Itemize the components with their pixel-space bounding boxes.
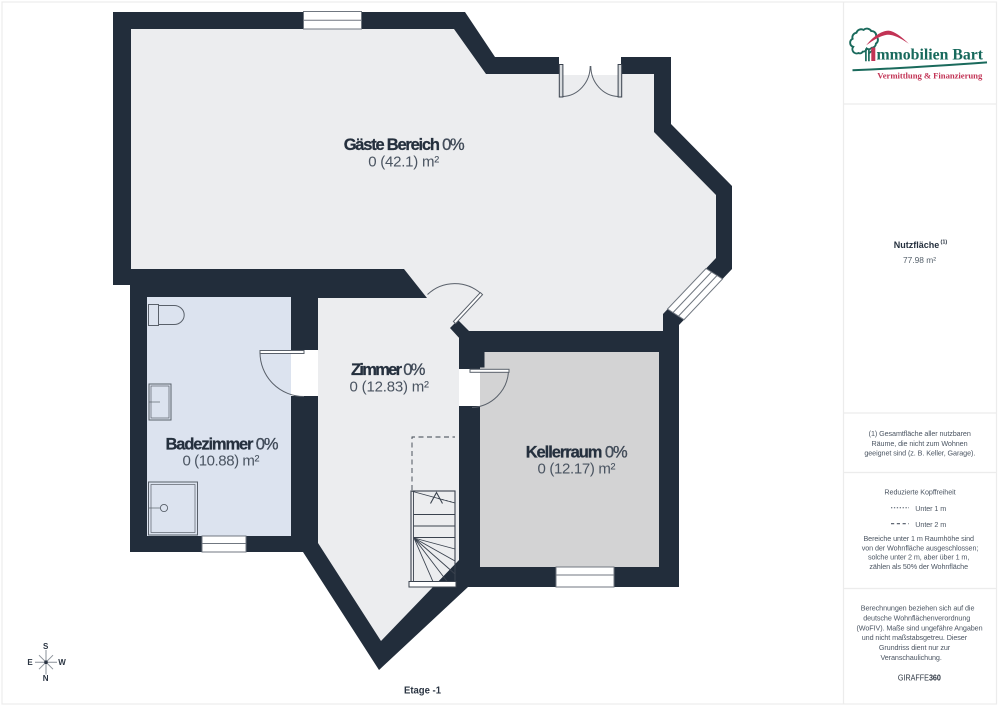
svg-text:Reduzierte Kopffreiheit: Reduzierte Kopffreiheit (884, 488, 955, 497)
svg-text:solche unter 2 m, aber über 1: solche unter 2 m, aber über 1 m, (868, 553, 969, 562)
svg-text:Zimmer 0%: Zimmer 0% (351, 361, 426, 379)
svg-text:Vermittlung & Finanzierung: Vermittlung & Finanzierung (877, 70, 983, 80)
svg-text:Berechnungen beziehen sich auf: Berechnungen beziehen sich auf die (861, 604, 975, 613)
svg-text:Bereiche unter 1 m Raumhöhe si: Bereiche unter 1 m Raumhöhe sind (863, 534, 974, 543)
svg-text:geeignet sind (z. B. Keller, G: geeignet sind (z. B. Keller, Garage). (864, 449, 975, 458)
svg-text:(1): (1) (941, 240, 948, 246)
svg-text:Räume, die nicht zum Wohnen: Räume, die nicht zum Wohnen (872, 439, 968, 448)
svg-text:Nutzfläche: Nutzfläche (894, 240, 940, 250)
svg-text:Gäste Bereich 0%: Gäste Bereich 0% (344, 136, 465, 154)
svg-text:Etage -1: Etage -1 (404, 686, 441, 697)
svg-text:E: E (27, 658, 33, 667)
svg-text:(WoFIV). Maße sind ungefähre A: (WoFIV). Maße sind ungefähre Angaben (856, 623, 982, 632)
svg-text:0 (42.1) m²: 0 (42.1) m² (368, 154, 439, 171)
svg-text:Badezimmer 0%: Badezimmer 0% (166, 436, 279, 454)
svg-text:mmobilien Bart: mmobilien Bart (877, 47, 984, 64)
svg-text:N: N (43, 674, 49, 683)
svg-text:Kellerraum 0%: Kellerraum 0% (526, 444, 628, 462)
svg-text:77.98 m²: 77.98 m² (903, 255, 936, 265)
svg-text:von der Wohnfläche ausgeschlos: von der Wohnfläche ausgeschlossen; (862, 543, 979, 552)
svg-text:Unter 1 m: Unter 1 m (915, 504, 946, 513)
svg-text:(1) Gesamtfläche aller nutzbar: (1) Gesamtfläche aller nutzbaren (869, 429, 971, 438)
svg-text:deutsche Wohnflächenverordnung: deutsche Wohnflächenverordnung (863, 613, 970, 622)
svg-text:GIRAFFE360: GIRAFFE360 (898, 674, 941, 683)
svg-text:Unter 2 m: Unter 2 m (915, 520, 946, 529)
svg-text:und nicht maßstabsgetreu. Dies: und nicht maßstabsgetreu. Dieser (862, 633, 968, 642)
svg-text:0 (10.88) m²: 0 (10.88) m² (183, 452, 260, 469)
svg-text:0 (12.83) m²: 0 (12.83) m² (350, 379, 430, 396)
svg-text:Veranschaulichung.: Veranschaulichung. (880, 653, 941, 662)
svg-text:Grundriss dient nur zur: Grundriss dient nur zur (879, 643, 951, 652)
svg-text:W: W (58, 658, 66, 667)
svg-text:S: S (43, 642, 49, 651)
svg-text:zählen als 50% der Wohnfläche: zählen als 50% der Wohnfläche (869, 562, 968, 571)
svg-text:0 (12.17) m²: 0 (12.17) m² (538, 460, 616, 477)
